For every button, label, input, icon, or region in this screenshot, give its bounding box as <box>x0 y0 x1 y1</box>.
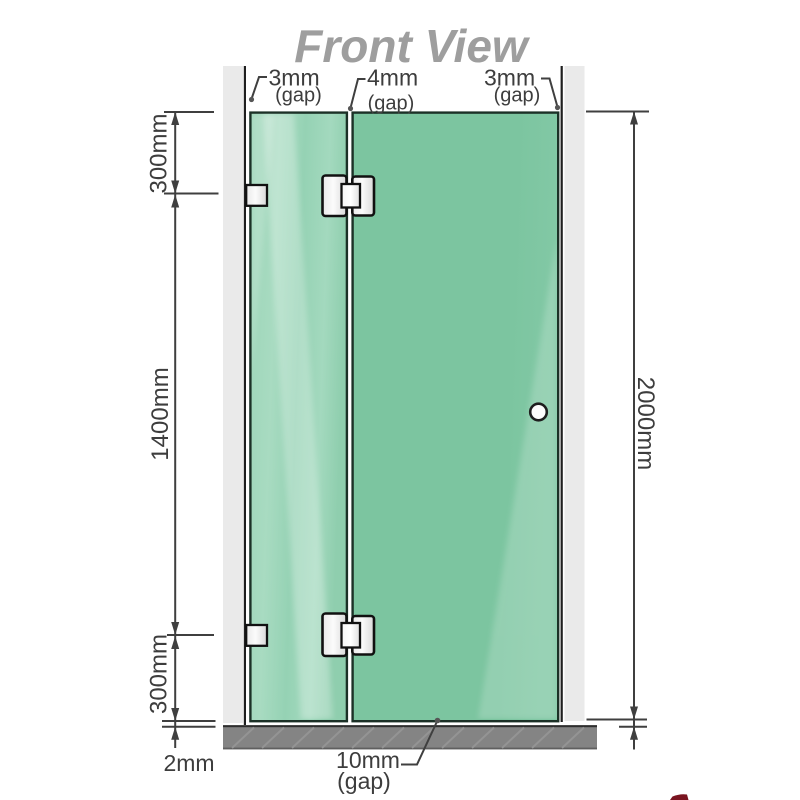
svg-text:300mm: 300mm <box>146 113 173 193</box>
svg-text:(gap): (gap) <box>337 768 391 794</box>
svg-text:2000mm: 2000mm <box>632 377 659 470</box>
svg-text:(gap): (gap) <box>494 85 541 107</box>
svg-text:300mm: 300mm <box>146 634 173 714</box>
svg-text:(gap): (gap) <box>275 85 322 107</box>
svg-text:2mm: 2mm <box>163 750 214 776</box>
svg-text:(gap): (gap) <box>368 93 415 115</box>
svg-text:4mm: 4mm <box>367 65 418 91</box>
svg-text:1400mm: 1400mm <box>147 367 174 460</box>
